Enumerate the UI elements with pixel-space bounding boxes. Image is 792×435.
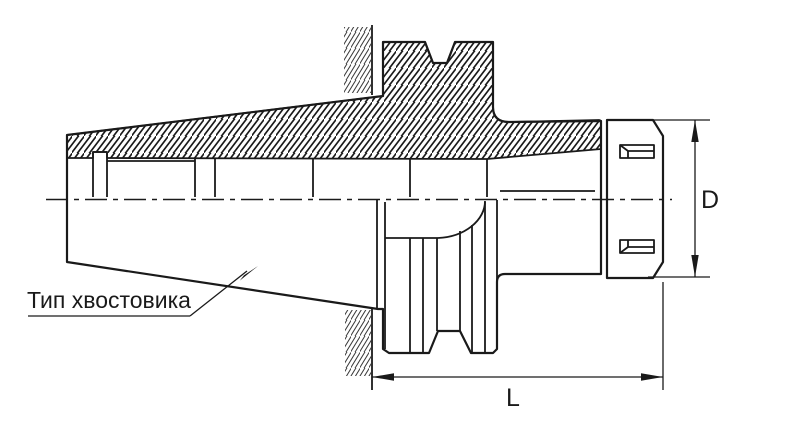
dim-label-l: L — [506, 384, 520, 412]
flange-detail-lines — [377, 200, 497, 353]
wall-hatch-area — [345, 310, 371, 376]
dim-label-d: D — [701, 186, 719, 214]
d-arrow-up-icon — [691, 120, 698, 142]
dimension-l: L — [372, 282, 663, 412]
d-arrow-down-icon — [691, 255, 698, 277]
l-arrow-left-icon — [372, 373, 394, 381]
spindle-wall-bottom — [345, 308, 372, 390]
wall-hatch-area — [344, 27, 371, 93]
collet-chuck-drawing: D L Тип хвостовика — [0, 0, 792, 435]
spindle-wall-top — [344, 25, 372, 95]
callout-leader-line — [190, 271, 247, 316]
shank-type-label: Тип хвостовика — [27, 287, 191, 313]
callout-arrow-icon — [240, 266, 258, 281]
technical-drawing-page: D L Тип хвостовика — [0, 0, 792, 435]
l-arrow-right-icon — [641, 373, 663, 381]
dimension-d: D — [648, 120, 719, 277]
section-hatch-region — [67, 42, 601, 159]
nut-slot-bottom — [620, 240, 654, 253]
nut-slot-top — [620, 145, 654, 158]
